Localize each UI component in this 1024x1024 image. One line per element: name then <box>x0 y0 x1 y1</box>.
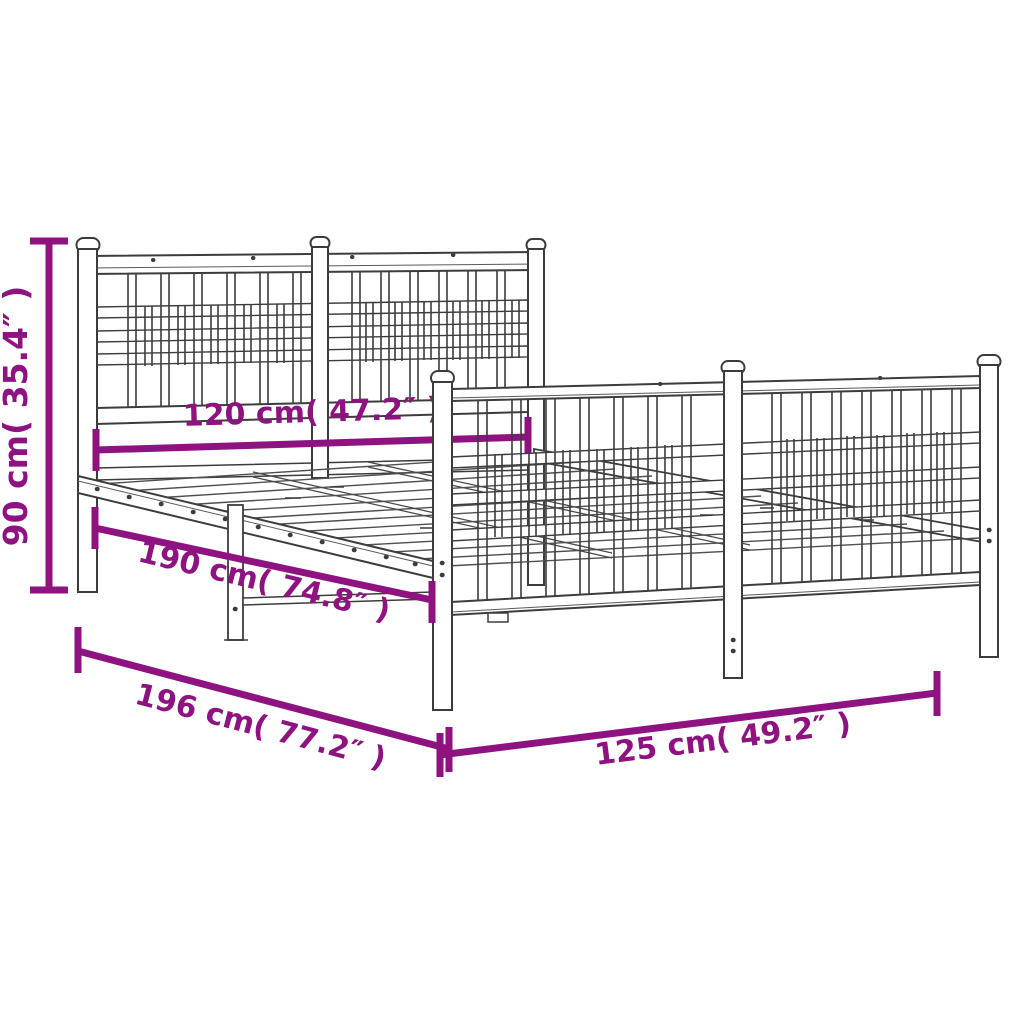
footboard-left-post <box>433 382 452 710</box>
dimension-label-height: 90 cm( 35.4″ ) <box>0 286 35 547</box>
dimension-total-width: 125 cm( 49.2″ ) <box>440 671 937 777</box>
left-side-rail-edge <box>78 481 433 566</box>
dimension-total-length: 196 cm( 77.2″ ) <box>78 627 449 777</box>
dimension-label-headboard-width: 120 cm( 47.2″ ) <box>182 391 441 434</box>
footboard-right-post <box>980 365 998 657</box>
footboard-bracket <box>488 613 508 622</box>
dimension-label-total-length: 196 cm( 77.2″ ) <box>131 677 389 777</box>
diagram-canvas: 120 cm( 47.2″ ) 90 cm( 35.4″ ) <box>0 0 1024 1024</box>
dimension-height: 90 cm( 35.4″ ) <box>0 241 68 590</box>
bed-frame-diagram: 120 cm( 47.2″ ) 90 cm( 35.4″ ) <box>0 0 1024 1024</box>
footboard-center-post <box>724 371 742 678</box>
longitudinal-rail-b <box>368 462 750 550</box>
